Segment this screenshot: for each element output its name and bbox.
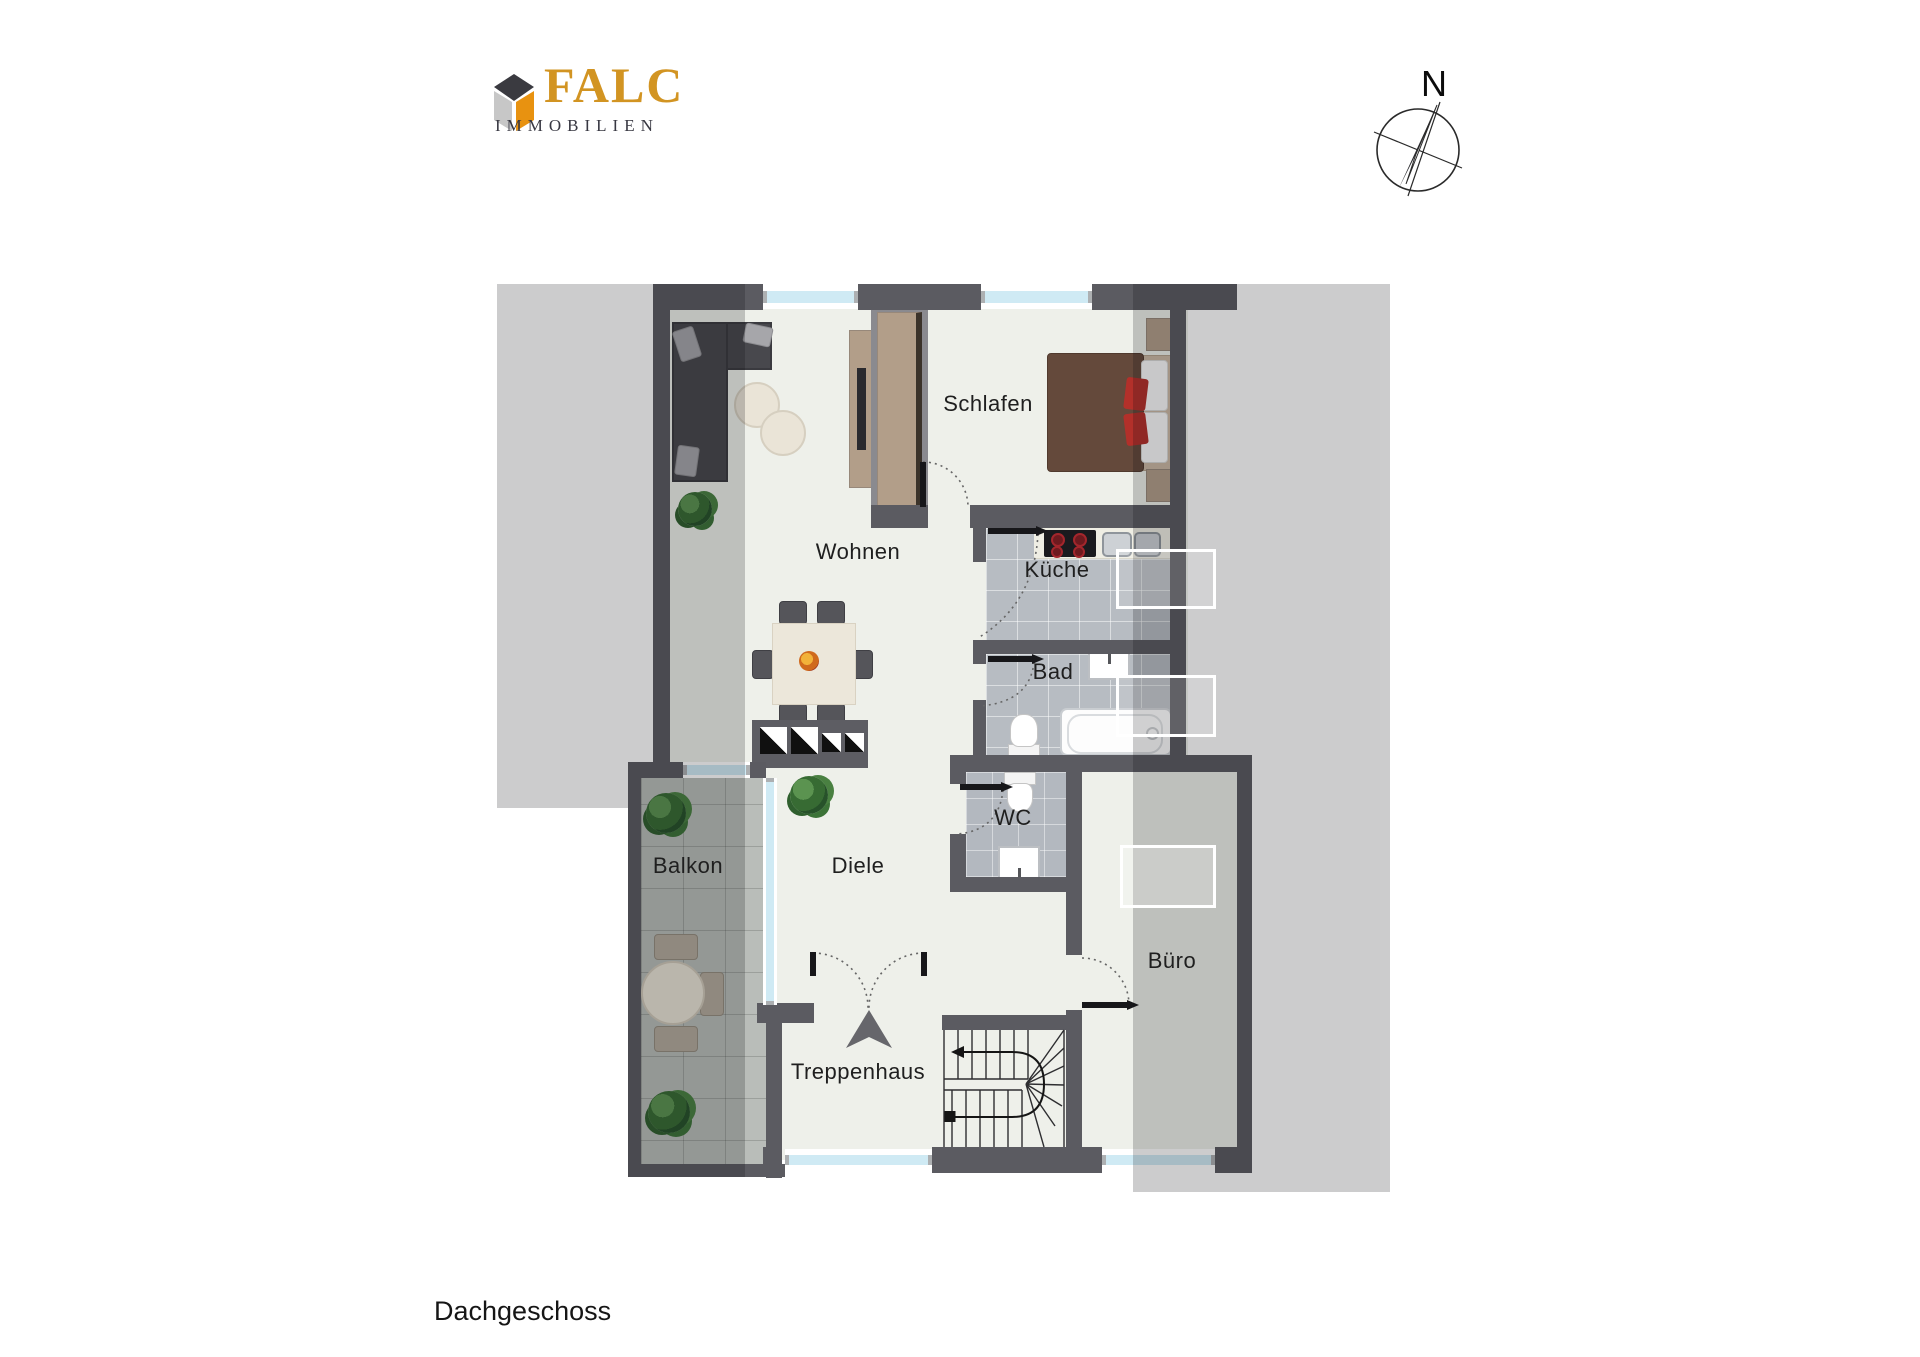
plan-symbols — [0, 0, 1920, 1357]
roof-window — [1116, 549, 1216, 609]
roof-slope-overlay — [1133, 284, 1390, 1192]
compass-rose-icon: N — [1358, 44, 1488, 219]
stair-direction-arrow — [846, 1010, 892, 1048]
room-label-buero: Büro — [1148, 948, 1196, 974]
room-label-diele: Diele — [832, 853, 885, 879]
room-label-treppenhaus: Treppenhaus — [791, 1059, 925, 1085]
brand-logo: FALC IMMOBILIEN — [494, 70, 694, 150]
brand-subtitle: IMMOBILIEN — [495, 116, 659, 136]
floorplan-canvas: FALC IMMOBILIEN N — [0, 0, 1920, 1357]
roof-slope-overlay — [497, 284, 745, 808]
room-label-balkon: Balkon — [653, 853, 723, 879]
room-label-wohnen: Wohnen — [816, 539, 901, 565]
room-label-kueche: Küche — [1025, 557, 1090, 583]
room-label-bad: Bad — [1033, 659, 1074, 685]
floor-title: Dachgeschoss — [434, 1296, 611, 1327]
skylight — [1120, 845, 1216, 908]
room-label-wc: WC — [994, 805, 1032, 831]
compass-north-label: N — [1421, 63, 1447, 104]
roof-window — [1116, 675, 1216, 737]
brand-name: FALC — [544, 56, 684, 114]
room-label-schlafen: Schlafen — [943, 391, 1033, 417]
